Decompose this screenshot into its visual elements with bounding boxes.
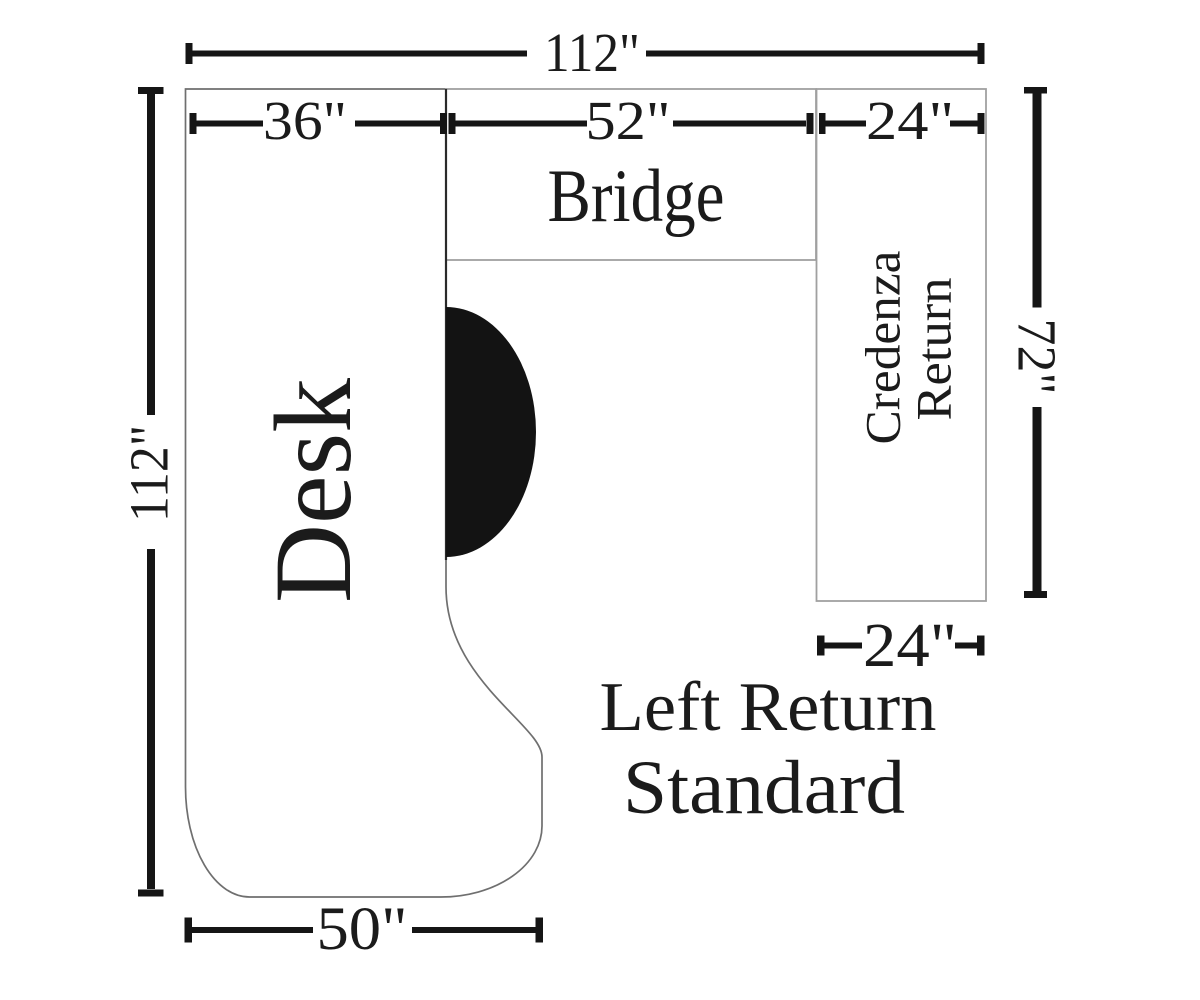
svg-text:50": 50" (317, 896, 408, 963)
svg-text:Desk: Desk (252, 378, 374, 603)
svg-text:112": 112" (118, 425, 179, 522)
svg-text:Return: Return (906, 278, 962, 421)
svg-text:52": 52" (586, 90, 671, 151)
svg-text:Credenza: Credenza (855, 251, 911, 445)
svg-text:112": 112" (544, 22, 640, 83)
svg-text:Left Return: Left Return (600, 669, 937, 746)
svg-text:24": 24" (866, 90, 954, 151)
svg-text:Standard: Standard (623, 746, 905, 830)
svg-text:72": 72" (1007, 319, 1068, 395)
svg-text:Bridge: Bridge (548, 155, 725, 238)
svg-text:36": 36" (263, 90, 347, 151)
